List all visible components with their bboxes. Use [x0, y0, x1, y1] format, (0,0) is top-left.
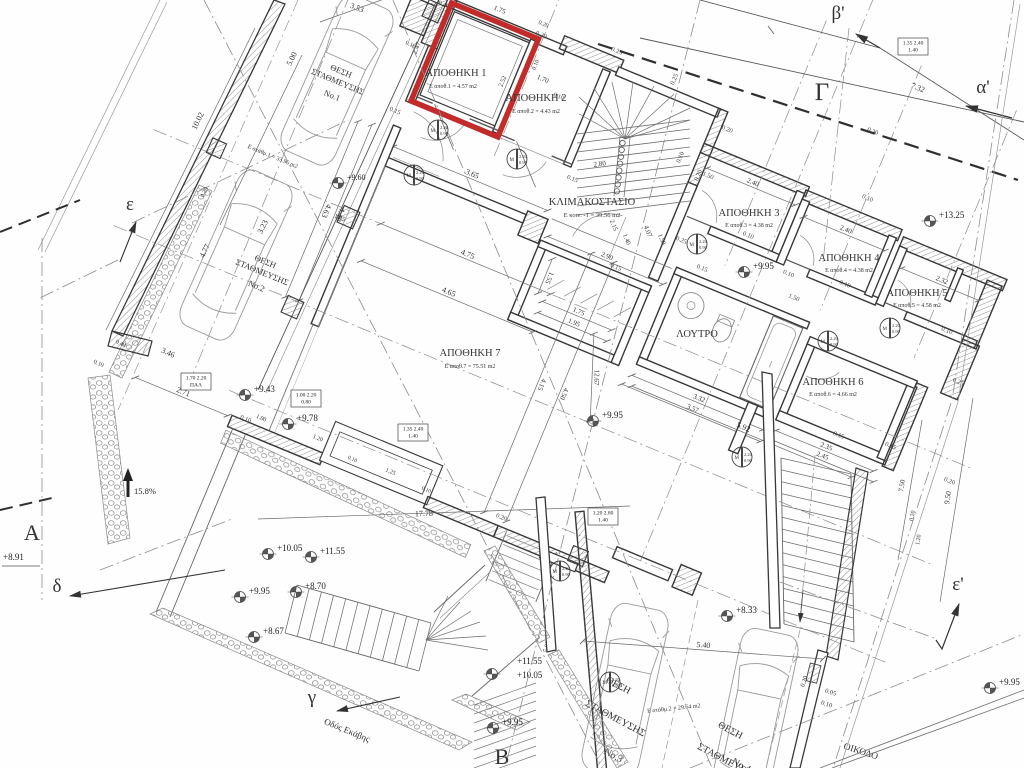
svg-text:M: M — [510, 158, 515, 163]
svg-text:ΑΠΟΘΗΚΗ 6: ΑΠΟΘΗΚΗ 6 — [803, 377, 864, 388]
svg-text:12.67: 12.67 — [592, 369, 601, 386]
svg-text:M: M — [735, 456, 740, 461]
svg-text:M: M — [883, 327, 888, 332]
svg-text:E αποθ.3 = 4.38 m2: E αποθ.3 = 4.38 m2 — [725, 223, 773, 229]
svg-text:ΑΠΟΘΗΚΗ 5: ΑΠΟΘΗΚΗ 5 — [887, 288, 948, 299]
svg-text:1.00 2.20: 1.00 2.20 — [296, 393, 317, 399]
svg-text:2.20: 2.20 — [519, 154, 528, 159]
svg-text:0.90: 0.90 — [416, 176, 425, 181]
svg-text:δ: δ — [53, 576, 62, 597]
svg-text:M: M — [821, 340, 826, 345]
svg-text:ε': ε' — [952, 574, 963, 595]
svg-text:Γ: Γ — [815, 79, 829, 106]
svg-text:M: M — [603, 681, 608, 686]
svg-text:0.90: 0.90 — [562, 572, 571, 577]
svg-text:E κοιν. -1 = 39.56 m2: E κοιν. -1 = 39.56 m2 — [564, 212, 621, 219]
svg-text:+9.95: +9.95 — [753, 261, 774, 271]
svg-text:+9.95: +9.95 — [999, 677, 1020, 687]
svg-text:5.40: 5.40 — [696, 640, 711, 650]
svg-text:ΑΠΟΘΗΚΗ 4: ΑΠΟΘΗΚΗ 4 — [819, 253, 881, 264]
svg-text:2.20: 2.20 — [440, 125, 449, 130]
svg-text:2.20: 2.20 — [699, 239, 708, 244]
svg-text:M: M — [431, 129, 436, 134]
svg-text:2.20: 2.20 — [612, 677, 621, 682]
svg-text:+11.55: +11.55 — [517, 656, 542, 666]
svg-text:0.80: 0.80 — [301, 400, 311, 406]
svg-text:2.20: 2.20 — [892, 323, 901, 328]
svg-text:0.90: 0.90 — [519, 160, 528, 165]
svg-text:ΛΟΥΤΡΟ: ΛΟΥΤΡΟ — [676, 329, 718, 340]
svg-text:M: M — [690, 243, 695, 248]
svg-text:A: A — [24, 520, 40, 545]
svg-text:γ: γ — [307, 687, 316, 708]
svg-text:2.20: 2.20 — [744, 452, 753, 457]
svg-text:M: M — [553, 570, 558, 575]
svg-text:ΑΠΟΘΗΚΗ 3: ΑΠΟΘΗΚΗ 3 — [719, 208, 780, 219]
svg-text:ΚΛΙΜΑΚΟΣΤΑΣΙΟ: ΚΛΙΜΑΚΟΣΤΑΣΙΟ — [549, 197, 636, 208]
svg-text:E αποθ.7 = 75.51 m2: E αποθ.7 = 75.51 m2 — [445, 364, 496, 370]
svg-text:1.40: 1.40 — [408, 434, 418, 440]
svg-text:+8.91: +8.91 — [3, 552, 24, 562]
svg-text:2.20: 2.20 — [416, 170, 425, 175]
svg-text:E αποθ.1 = 4.57 m2: E αποθ.1 = 4.57 m2 — [429, 84, 477, 90]
svg-text:+9.95: +9.95 — [602, 410, 623, 420]
svg-text:+13.25: +13.25 — [939, 210, 965, 220]
svg-text:0.90: 0.90 — [892, 329, 901, 334]
svg-text:+9.95: +9.95 — [502, 717, 523, 727]
svg-text:0.90: 0.90 — [440, 131, 449, 136]
svg-text:α': α' — [976, 77, 989, 98]
svg-text:ΠΑΛ: ΠΑΛ — [190, 383, 202, 389]
svg-text:E αποθ.4 = 4.38 m2: E αποθ.4 = 4.38 m2 — [825, 268, 873, 274]
svg-text:1.35 2.40: 1.35 2.40 — [903, 41, 924, 47]
svg-text:+9.95: +9.95 — [249, 586, 270, 596]
svg-text:+10.05: +10.05 — [517, 670, 543, 680]
svg-text:+9.60: +9.60 — [347, 173, 366, 182]
svg-text:ε: ε — [126, 194, 134, 215]
svg-text:1.20 2.80: 1.20 2.80 — [593, 511, 614, 517]
svg-text:E αποθ.6 = 4.66 m2: E αποθ.6 = 4.66 m2 — [809, 392, 857, 398]
svg-text:1.35 2.40: 1.35 2.40 — [403, 427, 424, 433]
svg-text:0.90: 0.90 — [830, 342, 839, 347]
svg-text:1.70 2.20: 1.70 2.20 — [186, 376, 207, 382]
svg-text:+9.78: +9.78 — [297, 413, 318, 423]
svg-text:0.90: 0.90 — [744, 458, 753, 463]
svg-text:+11.55: +11.55 — [320, 546, 345, 556]
svg-text:1.40: 1.40 — [908, 48, 918, 54]
svg-text:ΑΠΟΘΗΚΗ 7: ΑΠΟΘΗΚΗ 7 — [440, 348, 501, 359]
svg-text:E αποθ.5 = 4.58 m2: E αποθ.5 = 4.58 m2 — [893, 303, 941, 309]
svg-text:15.8%: 15.8% — [134, 486, 156, 496]
svg-text:β': β' — [831, 3, 844, 24]
svg-text:2.20: 2.20 — [562, 566, 571, 571]
svg-text:0.90: 0.90 — [612, 683, 621, 688]
svg-text:+8.67: +8.67 — [263, 626, 284, 636]
svg-text:+9.43: +9.43 — [254, 384, 275, 394]
svg-text:E αποθ.2 = 4.43 m2: E αποθ.2 = 4.43 m2 — [512, 109, 560, 115]
svg-text:+8.70: +8.70 — [305, 581, 326, 591]
svg-text:0.90: 0.90 — [699, 245, 708, 250]
svg-text:B: B — [495, 744, 510, 768]
svg-text:+10.05: +10.05 — [277, 543, 303, 553]
svg-text:M: M — [407, 174, 412, 179]
svg-text:2.20: 2.20 — [830, 336, 839, 341]
svg-text:ΑΠΟΘΗΚΗ 1: ΑΠΟΘΗΚΗ 1 — [426, 68, 487, 79]
svg-text:17.78: 17.78 — [415, 509, 433, 519]
svg-text:+8.33: +8.33 — [736, 605, 757, 615]
svg-text:1.40: 1.40 — [598, 518, 608, 524]
